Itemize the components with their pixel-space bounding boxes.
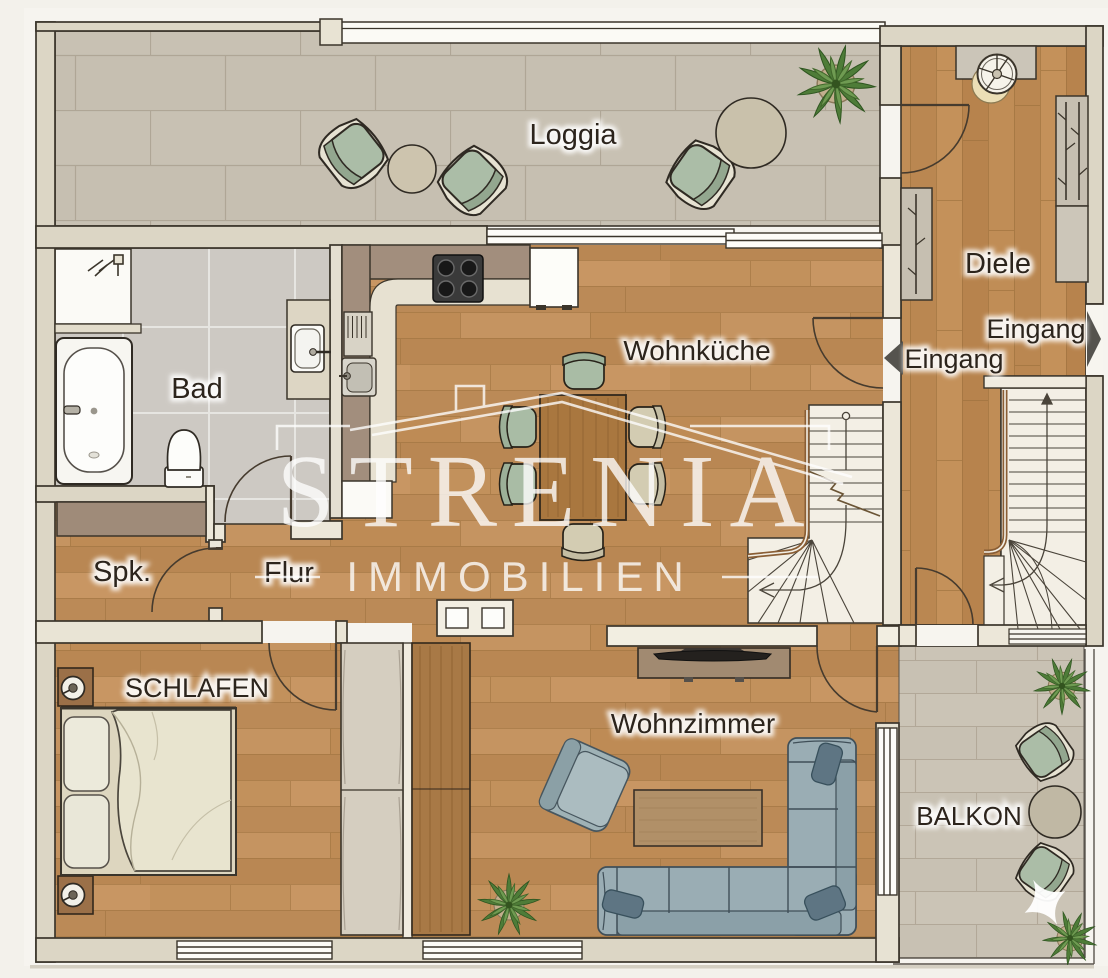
svg-text:IMMOBILIEN: IMMOBILIEN [346,553,693,600]
svg-text:BALKON: BALKON [916,801,1022,831]
svg-text:Eingang: Eingang [986,314,1085,344]
svg-text:Wohnküche: Wohnküche [623,335,770,366]
svg-text:Eingang: Eingang [904,344,1003,374]
svg-text:STRENIA: STRENIA [277,434,820,549]
svg-text:Diele: Diele [965,248,1031,280]
svg-text:Loggia: Loggia [529,119,617,151]
svg-text:Bad: Bad [171,373,223,405]
svg-text:Wohnzimmer: Wohnzimmer [611,708,775,739]
svg-text:Spk.: Spk. [93,556,151,588]
svg-text:SCHLAFEN: SCHLAFEN [125,673,269,703]
svg-text:Flur: Flur [264,557,314,589]
